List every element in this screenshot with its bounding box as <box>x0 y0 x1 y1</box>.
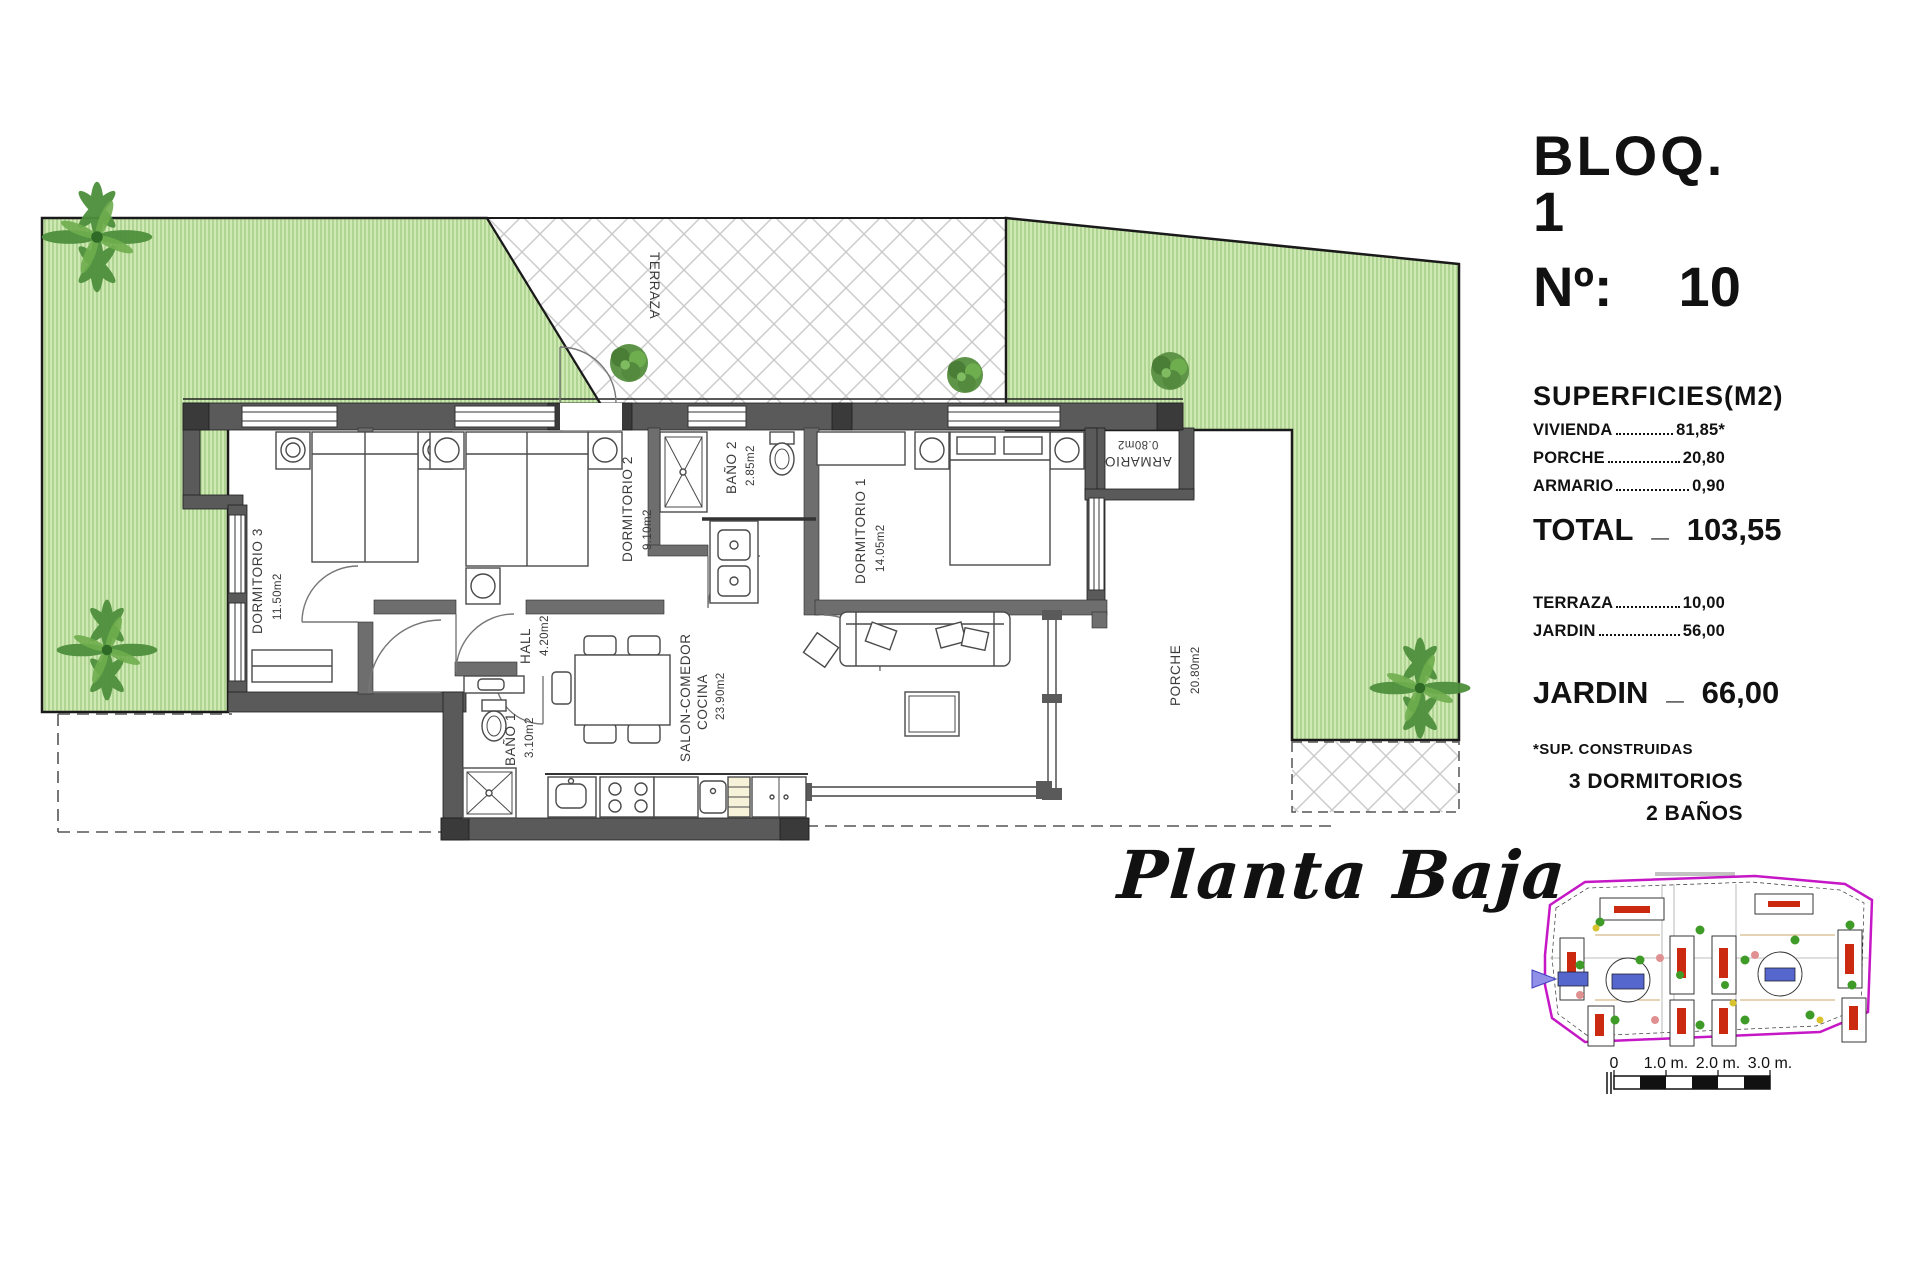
unit-prefix: Nº: <box>1533 254 1613 319</box>
jardin-total-value: 66,00 <box>1702 675 1780 711</box>
superficie-row: PORCHE 20,80 <box>1533 449 1725 468</box>
row-name: VIVIENDA <box>1533 421 1613 440</box>
footnote: *SUP. CONSTRUIDAS <box>1533 741 1773 758</box>
room-label-bano2: BAÑO 2 <box>724 441 739 494</box>
bush-tree-icon <box>1151 352 1189 390</box>
room-area-porche: 20.80m2 <box>1190 646 1202 694</box>
bathrooms-count: 2 BAÑOS <box>1533 802 1743 826</box>
dot-leader <box>1616 433 1674 435</box>
room-area-bano2: 2.85m2 <box>745 445 757 486</box>
highlighted-unit <box>1558 972 1588 986</box>
total-separator: _ <box>1651 508 1668 544</box>
row-name: TERRAZA <box>1533 594 1613 613</box>
unit-number: 10 <box>1679 254 1741 319</box>
room-label-salon-line1: SALON-COMEDOR <box>678 633 693 762</box>
scale-label-0: 0 <box>1610 1055 1619 1072</box>
bush-tree-icon <box>610 344 648 382</box>
room-label-hall: HALL <box>518 628 533 664</box>
total-label: TOTAL <box>1533 512 1633 548</box>
jardin-total-label: JARDIN <box>1533 675 1648 711</box>
block-title: BLOQ. 1 <box>1533 128 1773 240</box>
room-area-dormitorio3: 11.50m2 <box>272 573 284 620</box>
superficies-title: SUPERFICIES(M2) <box>1533 381 1773 412</box>
jardin-total-separator: _ <box>1666 671 1683 707</box>
total-row: TOTAL _ 103,55 <box>1533 512 1773 548</box>
scale-label-1m: 1.0 m. <box>1644 1055 1688 1072</box>
dot-leader <box>1616 606 1679 608</box>
row-value: 81,85* <box>1676 421 1725 440</box>
room-area-armario: 0.80m2 <box>1118 438 1159 450</box>
bush-tree-icon <box>947 357 983 393</box>
row-value: 0,90 <box>1692 477 1725 496</box>
superficie-row: ARMARIO 0,90 <box>1533 477 1725 496</box>
pool-icon <box>1765 968 1795 981</box>
floor-plan-sheet: TERRAZA DORMITORIO 3 11.50m2 DORMITORIO … <box>0 0 1920 1280</box>
room-label-dormitorio3: DORMITORIO 3 <box>250 528 265 634</box>
room-label-dormitorio1: DORMITORIO 1 <box>853 478 868 584</box>
bedrooms-count: 3 DORMITORIOS <box>1533 770 1743 794</box>
plan-title: Planta Baja <box>1115 836 1569 914</box>
scale-label-2m: 2.0 m. <box>1696 1055 1740 1072</box>
room-label-dormitorio2: DORMITORIO 2 <box>620 456 635 562</box>
room-label-armario: ARMARIO <box>1104 454 1171 469</box>
unit-number-row: Nº: 10 <box>1533 254 1773 319</box>
pool-icon <box>1612 974 1644 989</box>
superficie-row: VIVIENDA 81,85* <box>1533 421 1725 440</box>
row-name: ARMARIO <box>1533 477 1613 496</box>
dot-leader <box>1599 634 1680 636</box>
room-area-salon: 23.90m2 <box>715 672 727 720</box>
superficie-row: TERRAZA 10,00 <box>1533 594 1725 613</box>
row-name: PORCHE <box>1533 449 1605 468</box>
info-panel: BLOQ. 1 Nº: 10 SUPERFICIES(M2) VIVIENDA … <box>1533 128 1773 826</box>
superficie-row: JARDIN 56,00 <box>1533 622 1725 641</box>
room-label-porche: PORCHE <box>1168 645 1183 706</box>
dot-leader <box>1608 461 1680 463</box>
row-value: 56,00 <box>1683 622 1725 641</box>
room-label-bano1: BAÑO 1 <box>503 713 518 766</box>
total-value: 103,55 <box>1687 512 1782 548</box>
outdoor-rows: TERRAZA 10,00 JARDIN 56,00 <box>1533 594 1773 641</box>
row-value: 10,00 <box>1683 594 1725 613</box>
room-area-bano1: 3.10m2 <box>524 717 536 758</box>
room-area-dormitorio1: 14.05m2 <box>875 524 887 572</box>
room-area-dormitorio2: 9.10m2 <box>642 509 654 550</box>
gravel-strip-right <box>1292 742 1459 812</box>
row-value: 20,80 <box>1683 449 1725 468</box>
furniture <box>252 432 1084 818</box>
room-label-salon-line2: COCINA <box>695 674 710 730</box>
room-label-terraza: TERRAZA <box>647 252 662 319</box>
dot-leader <box>1616 489 1689 491</box>
jardin-total-row: JARDIN _ 66,00 <box>1533 675 1773 711</box>
features: 3 DORMITORIOS 2 BAÑOS <box>1533 770 1773 826</box>
scale-bar: 0 1.0 m. 2.0 m. 3.0 m. <box>1607 1055 1792 1094</box>
room-area-hall: 4.20m2 <box>539 615 551 656</box>
garden-right <box>1006 218 1459 740</box>
row-name: JARDIN <box>1533 622 1596 641</box>
site-plan-minimap <box>1532 872 1872 1046</box>
scale-label-3m: 3.0 m. <box>1748 1055 1792 1072</box>
